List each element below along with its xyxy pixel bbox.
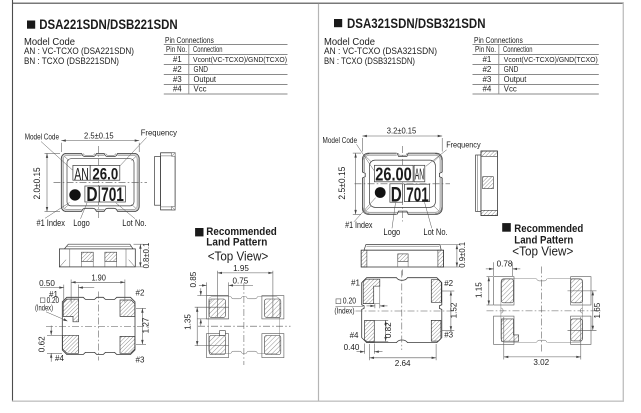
svg-text:Lot No.: Lot No. <box>122 218 146 228</box>
svg-text:GND: GND <box>194 65 209 74</box>
svg-text:2.64: 2.64 <box>395 358 411 368</box>
svg-text:701: 701 <box>101 184 124 206</box>
svg-text:1.65: 1.65 <box>592 302 602 318</box>
svg-text:0.8±0.1: 0.8±0.1 <box>141 242 151 268</box>
svg-text:Pin Connections: Pin Connections <box>474 36 523 45</box>
svg-text:0.9±0.1: 0.9±0.1 <box>457 242 467 268</box>
svg-text:#1 Index: #1 Index <box>345 220 373 230</box>
svg-text:0.50: 0.50 <box>39 278 55 288</box>
svg-text:Output: Output <box>194 75 217 84</box>
svg-text:#4: #4 <box>350 331 359 340</box>
svg-text:(Index): (Index) <box>35 303 53 312</box>
svg-text:#4: #4 <box>482 85 491 94</box>
svg-text:3.02: 3.02 <box>533 357 549 367</box>
svg-text:Pin No.: Pin No. <box>166 45 187 54</box>
svg-text:Pin Connections: Pin Connections <box>165 36 214 45</box>
svg-text:Frequency: Frequency <box>446 140 481 150</box>
svg-text:0.82: 0.82 <box>383 322 393 338</box>
svg-text:#4: #4 <box>173 85 182 94</box>
svg-text:Frequency: Frequency <box>141 127 178 137</box>
svg-text:(Index): (Index) <box>334 306 354 316</box>
svg-text:#3: #3 <box>444 330 453 339</box>
svg-text:#1: #1 <box>173 55 182 64</box>
svg-text:Land Pattern: Land Pattern <box>206 237 267 249</box>
svg-text:<Top View>: <Top View> <box>512 244 573 258</box>
svg-text:#3: #3 <box>173 75 182 84</box>
svg-text:Logo: Logo <box>383 227 400 237</box>
svg-text:BN : TCXO (DSB221SDN): BN : TCXO (DSB221SDN) <box>24 56 119 66</box>
svg-text:AN: AN <box>415 167 424 184</box>
svg-text:#2: #2 <box>482 65 491 74</box>
svg-text:1.52: 1.52 <box>448 302 458 318</box>
svg-text:Model Code: Model Code <box>25 132 60 141</box>
svg-text:0.85: 0.85 <box>188 271 198 287</box>
svg-text:#2: #2 <box>444 279 453 288</box>
svg-text:Recommended: Recommended <box>514 223 583 235</box>
svg-text:Vcont(VC-TCXO)/GND(TCXO): Vcont(VC-TCXO)/GND(TCXO) <box>193 55 287 64</box>
svg-text:Output: Output <box>504 75 527 84</box>
svg-text:0.20: 0.20 <box>343 296 357 306</box>
svg-text:D: D <box>391 182 402 206</box>
svg-text:1.90: 1.90 <box>91 273 106 283</box>
svg-text:#1: #1 <box>482 55 491 64</box>
svg-text:0.62: 0.62 <box>37 336 47 352</box>
svg-text:Lot No.: Lot No. <box>423 227 447 237</box>
svg-text:#2: #2 <box>136 289 145 298</box>
svg-text:2.5±0.15: 2.5±0.15 <box>337 167 347 200</box>
svg-text:#2: #2 <box>173 65 182 74</box>
svg-text:Logo: Logo <box>73 218 90 228</box>
svg-text:Vcc: Vcc <box>504 85 517 94</box>
svg-text:DSA221SDN/DSB221SDN: DSA221SDN/DSB221SDN <box>39 17 178 32</box>
svg-text:Vcont(VC-TCXO)/GND(TCXO): Vcont(VC-TCXO)/GND(TCXO) <box>504 55 598 64</box>
svg-text:<Top View>: <Top View> <box>208 249 269 263</box>
svg-text:#3: #3 <box>136 355 145 364</box>
svg-text:3.2±0.15: 3.2±0.15 <box>387 126 417 136</box>
svg-text:0.75: 0.75 <box>233 276 249 286</box>
svg-text:26.0: 26.0 <box>92 165 118 183</box>
svg-text:AN: AN <box>74 164 89 184</box>
svg-text:D: D <box>86 183 97 206</box>
svg-text:0.40: 0.40 <box>344 342 360 352</box>
svg-text:#4: #4 <box>55 354 64 363</box>
svg-text:#3: #3 <box>482 75 491 84</box>
svg-text:GND: GND <box>504 65 519 74</box>
svg-text:2.0±0.15: 2.0±0.15 <box>32 167 42 199</box>
svg-text:AN : VC-TCXO (DSA221SDN): AN : VC-TCXO (DSA221SDN) <box>24 46 134 56</box>
svg-text:1.27: 1.27 <box>140 317 150 333</box>
svg-text:AN : VC-TCXO (DSA321SDN): AN : VC-TCXO (DSA321SDN) <box>324 46 437 56</box>
svg-text:2.5±0.15: 2.5±0.15 <box>84 130 114 140</box>
svg-text:BN : TCXO (DSB321SDN): BN : TCXO (DSB321SDN) <box>324 56 415 66</box>
svg-text:#1: #1 <box>351 278 360 287</box>
svg-text:1.95: 1.95 <box>233 263 249 273</box>
svg-text:Model Code: Model Code <box>323 136 358 145</box>
svg-text:Vcc: Vcc <box>194 85 207 94</box>
svg-text:0.78: 0.78 <box>497 258 513 268</box>
svg-text:1.35: 1.35 <box>183 314 193 330</box>
svg-text:Connection: Connection <box>503 45 533 54</box>
svg-text:701: 701 <box>406 184 429 206</box>
svg-text:DSA321SDN/DSB321SDN: DSA321SDN/DSB321SDN <box>347 16 486 31</box>
svg-text:Pin No.: Pin No. <box>475 45 496 54</box>
svg-text:1.15: 1.15 <box>474 282 484 298</box>
svg-text:#1 Index: #1 Index <box>37 218 66 228</box>
svg-text:Connection: Connection <box>193 45 223 54</box>
